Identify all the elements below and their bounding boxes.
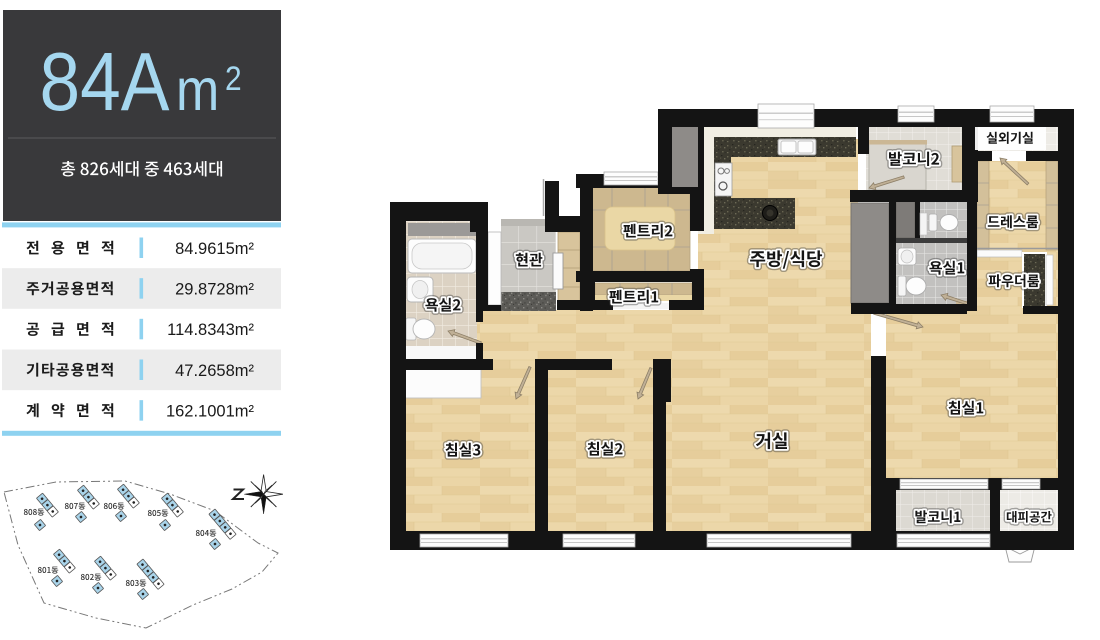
- svg-text:84A: 84A: [40, 35, 170, 128]
- svg-text:m: m: [176, 57, 219, 123]
- svg-text:2: 2: [225, 59, 242, 97]
- svg-text:162.1001m²: 162.1001m²: [166, 402, 255, 420]
- svg-text:29.8728m²: 29.8728m²: [175, 281, 254, 299]
- svg-text:47.2658m²: 47.2658m²: [175, 362, 254, 380]
- svg-text:114.8343m²: 114.8343m²: [167, 321, 254, 339]
- svg-text:84.9615m²: 84.9615m²: [175, 240, 254, 258]
